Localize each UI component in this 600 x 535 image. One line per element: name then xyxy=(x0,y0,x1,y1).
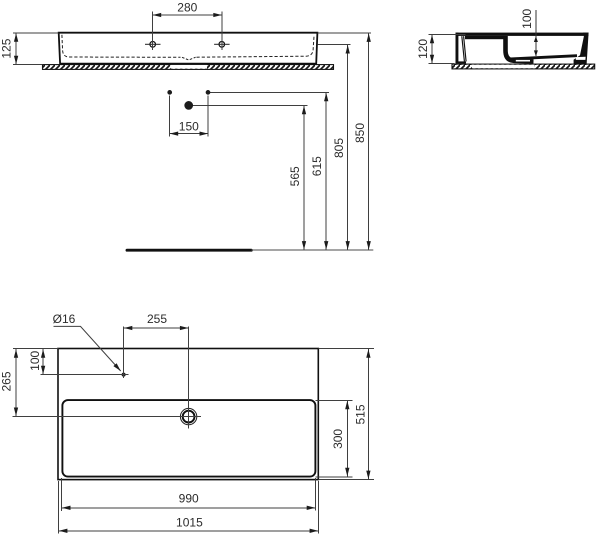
svg-text:255: 255 xyxy=(147,312,167,326)
svg-text:1015: 1015 xyxy=(176,515,203,529)
svg-text:100: 100 xyxy=(520,8,534,28)
svg-text:100: 100 xyxy=(28,350,42,370)
svg-text:120: 120 xyxy=(416,39,430,59)
svg-text:Ø16: Ø16 xyxy=(53,312,76,326)
svg-text:125: 125 xyxy=(0,38,13,58)
svg-text:615: 615 xyxy=(310,156,324,176)
svg-text:990: 990 xyxy=(179,492,199,506)
svg-text:150: 150 xyxy=(179,119,199,133)
svg-text:565: 565 xyxy=(288,166,302,186)
svg-text:280: 280 xyxy=(177,1,197,15)
svg-text:850: 850 xyxy=(353,123,367,143)
svg-text:515: 515 xyxy=(354,404,368,424)
svg-text:805: 805 xyxy=(332,138,346,158)
svg-text:265: 265 xyxy=(0,371,13,391)
svg-text:300: 300 xyxy=(331,429,345,449)
